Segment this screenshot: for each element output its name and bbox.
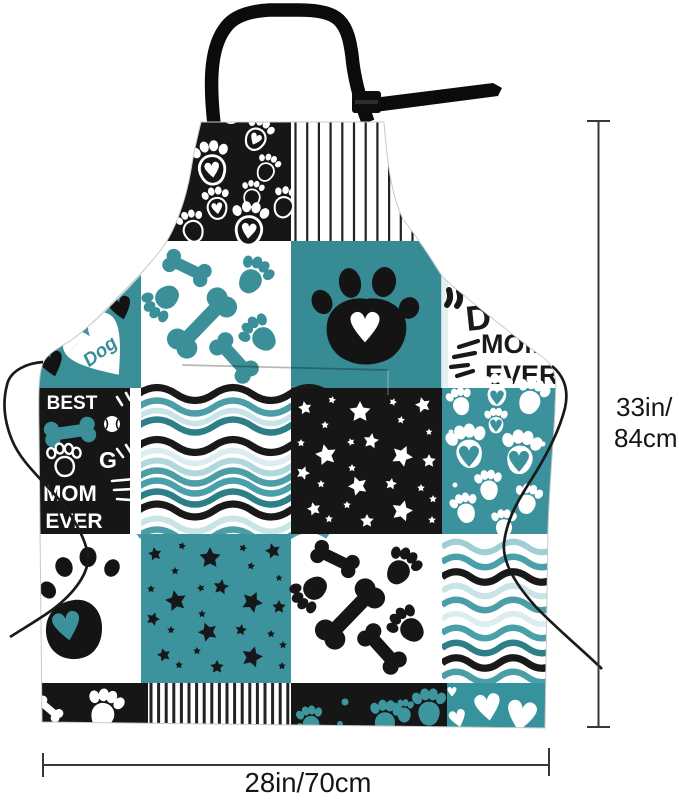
svg-text:G: G (99, 447, 117, 473)
svg-text:84cm: 84cm (614, 423, 678, 453)
svg-text:MOM: MOM (43, 481, 97, 506)
svg-text:BEST: BEST (47, 393, 98, 414)
svg-text:28in/70cm: 28in/70cm (245, 767, 372, 798)
svg-text:33in/: 33in/ (616, 392, 673, 422)
